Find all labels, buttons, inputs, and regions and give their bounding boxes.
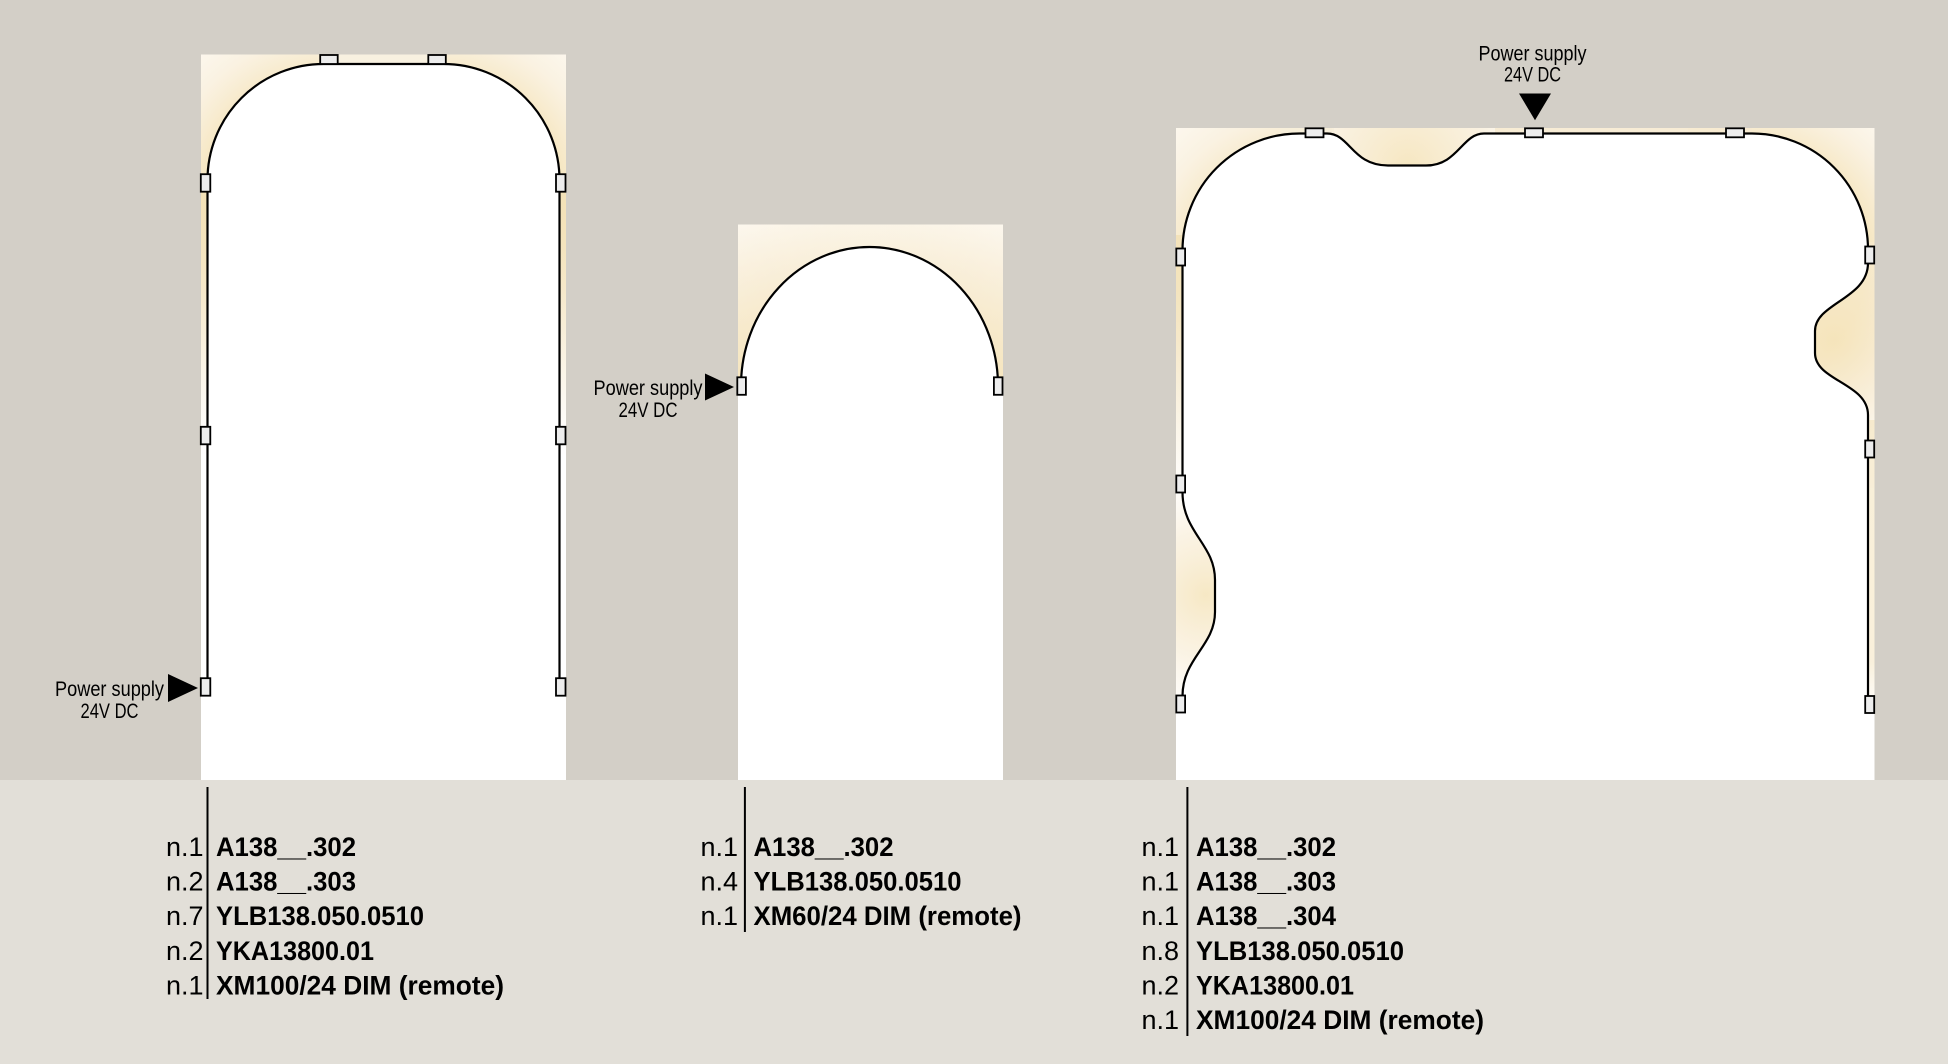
svg-text:n.1: n.1 xyxy=(700,901,738,931)
svg-text:YLB138.050.0510: YLB138.050.0510 xyxy=(216,901,424,931)
svg-text:A138__.303: A138__.303 xyxy=(1196,867,1336,897)
svg-text:YLB138.050.0510: YLB138.050.0510 xyxy=(754,867,962,897)
svg-text:Power supply: Power supply xyxy=(1479,43,1587,66)
svg-text:24V DC: 24V DC xyxy=(81,700,139,723)
svg-text:A138__.302: A138__.302 xyxy=(1196,832,1336,862)
svg-text:n.7: n.7 xyxy=(166,901,204,931)
svg-text:n.1: n.1 xyxy=(1141,867,1179,897)
svg-text:XM60/24 DIM (remote): XM60/24 DIM (remote) xyxy=(754,901,1022,931)
svg-text:n.2: n.2 xyxy=(166,867,204,897)
svg-text:XM100/24 DIM (remote): XM100/24 DIM (remote) xyxy=(1196,1005,1484,1035)
svg-text:n.1: n.1 xyxy=(1141,1005,1179,1035)
svg-text:A138__.302: A138__.302 xyxy=(754,832,894,862)
svg-text:n.4: n.4 xyxy=(700,867,738,897)
svg-text:A138__.304: A138__.304 xyxy=(1196,901,1336,931)
svg-text:24V DC: 24V DC xyxy=(1504,64,1561,87)
svg-text:YKA13800.01: YKA13800.01 xyxy=(216,936,374,966)
svg-text:YLB138.050.0510: YLB138.050.0510 xyxy=(1196,936,1404,966)
svg-text:n.1: n.1 xyxy=(166,970,204,1000)
svg-text:n.8: n.8 xyxy=(1141,936,1179,966)
svg-text:24V DC: 24V DC xyxy=(619,399,678,422)
svg-text:YKA13800.01: YKA13800.01 xyxy=(1196,970,1354,1000)
svg-text:Power supply: Power supply xyxy=(594,377,703,400)
svg-text:n.1: n.1 xyxy=(1141,901,1179,931)
svg-text:n.1: n.1 xyxy=(166,832,204,862)
svg-text:XM100/24 DIM (remote): XM100/24 DIM (remote) xyxy=(216,970,504,1000)
svg-text:A138__.302: A138__.302 xyxy=(216,832,356,862)
svg-text:n.1: n.1 xyxy=(1141,832,1179,862)
svg-text:A138__.303: A138__.303 xyxy=(216,867,356,897)
svg-text:n.2: n.2 xyxy=(166,936,204,966)
svg-text:Power supply: Power supply xyxy=(55,678,164,701)
svg-text:n.1: n.1 xyxy=(700,832,738,862)
svg-text:n.2: n.2 xyxy=(1141,970,1179,1000)
